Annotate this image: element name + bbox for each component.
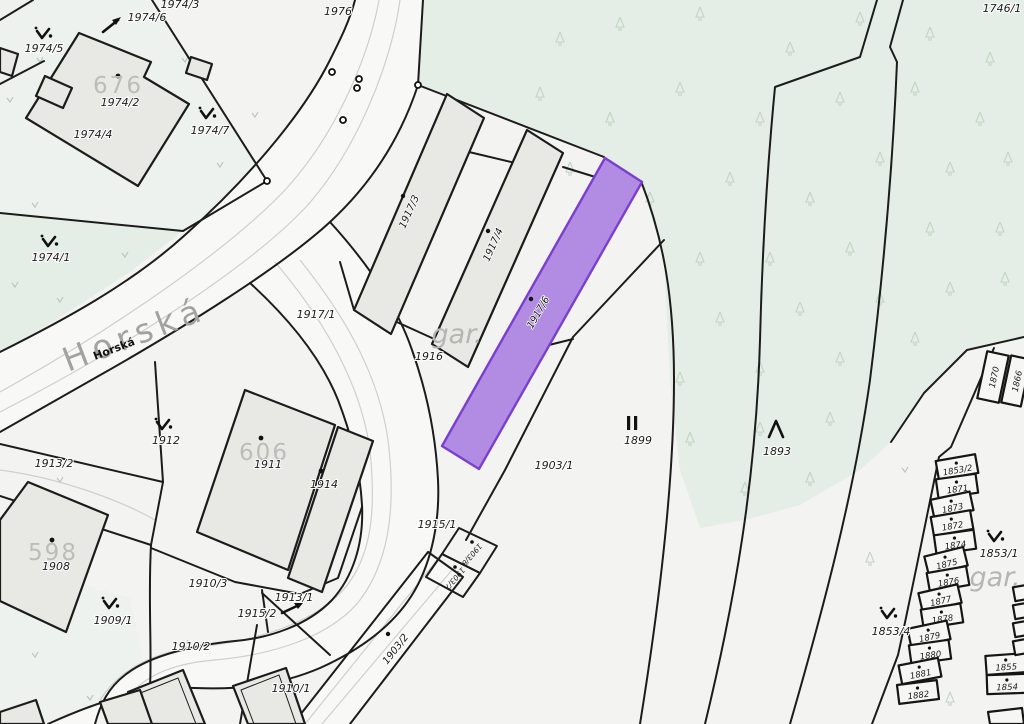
parcel-label: 1746/1 xyxy=(983,2,1022,15)
parcel-label: 1903/1 xyxy=(535,459,574,472)
parcel-label: 1913/1 xyxy=(275,591,314,604)
gar-label-center: gar. xyxy=(432,319,483,350)
parcel-label: 1910/1 xyxy=(272,682,311,695)
parcel-label: 1893 xyxy=(763,445,791,458)
parcel-label: 1974/1 xyxy=(32,251,71,264)
parcel-label: 1916 xyxy=(415,350,443,363)
parcel-label: 1974/7 xyxy=(191,124,230,137)
parcel-label: 1914 xyxy=(310,478,338,491)
parcel-label: 1976 xyxy=(324,5,352,18)
parcel-label: 1912 xyxy=(152,434,180,447)
parcel-label: 1974/5 xyxy=(25,42,64,55)
cadastral-map-viewport[interactable]: 1853/2 1871 1873 1872 1874 1875 1876 187… xyxy=(0,0,1024,724)
parcel-label: 1974/4 xyxy=(74,128,113,141)
parcel-label: 1974/6 xyxy=(128,11,167,24)
parcel-label: 1974/3 xyxy=(161,0,200,11)
parcel-label: 1853/1 xyxy=(980,547,1019,560)
parcel-label: 1910/2 xyxy=(172,640,211,653)
parcel-label: 1899 xyxy=(624,434,652,447)
garage-label: 1855 xyxy=(995,662,1017,673)
parcel-label: 1853/4 xyxy=(872,625,911,638)
parcel-label: 1974/2 xyxy=(101,96,140,109)
parcel-label: 1911 xyxy=(254,458,282,471)
cadastral-map[interactable]: 1853/2 1871 1873 1872 1874 1875 1876 187… xyxy=(0,0,1024,724)
parcel-label: 1913/2 xyxy=(35,457,74,470)
parcel-label: 1908 xyxy=(42,560,70,573)
parcel-label: 1915/1 xyxy=(418,518,457,531)
parcel-label: 1917/1 xyxy=(297,308,336,321)
parcel-label: 1915/2 xyxy=(238,607,277,620)
garage-label: 1854 xyxy=(996,683,1018,694)
parcel-label: 1909/1 xyxy=(94,614,133,627)
gar-label-right: gar. xyxy=(970,562,1021,593)
parcel-label: 1910/3 xyxy=(189,577,228,590)
